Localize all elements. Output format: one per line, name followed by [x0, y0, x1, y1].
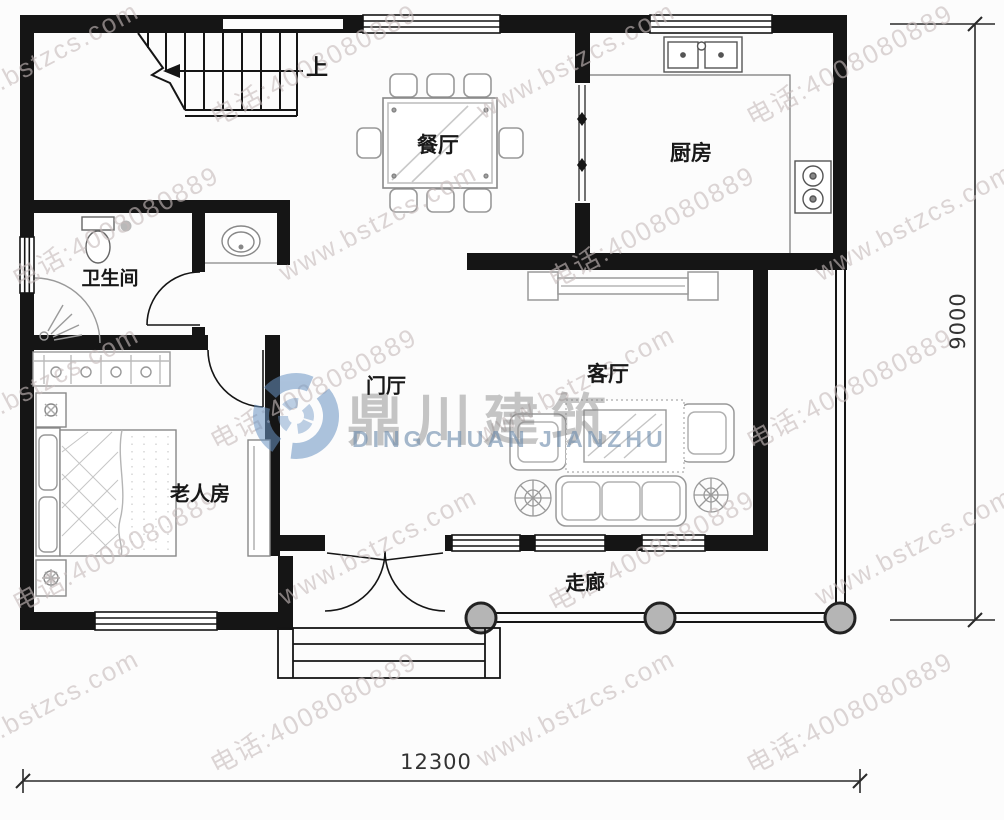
dimension-right-value: 9000 — [946, 292, 970, 349]
room-label-bedroom: 老人房 — [170, 478, 230, 507]
floor-plan-page: www.bstzcs.com电话:4008080889www.bstzcs.co… — [0, 0, 1004, 820]
room-label-kitchen: 厨房 — [670, 137, 712, 167]
room-label-bathroom: 卫生间 — [81, 264, 138, 291]
room-label-foyer: 门厅 — [366, 370, 406, 399]
labels-layer: 餐厅 厨房 卫生间 门厅 客厅 老人房 走廊 上 12300 9000 — [0, 0, 1004, 820]
room-label-corridor: 走廊 — [564, 565, 605, 596]
stairs-up-label: 上 — [306, 50, 328, 82]
room-label-living: 客厅 — [587, 358, 629, 388]
dimension-bottom-value: 12300 — [400, 750, 472, 774]
room-label-dining: 餐厅 — [417, 129, 459, 159]
